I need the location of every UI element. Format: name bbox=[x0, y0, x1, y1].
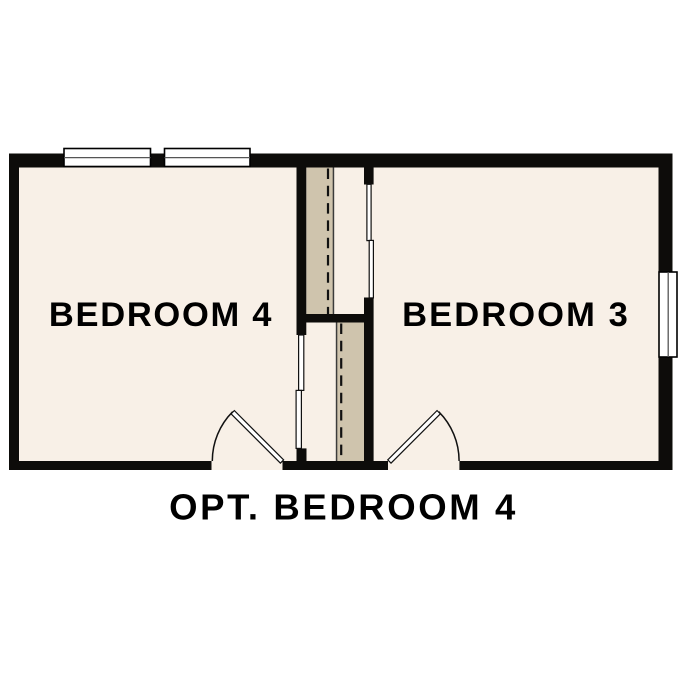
svg-text:BEDROOM 4: BEDROOM 4 bbox=[49, 296, 273, 334]
svg-text:OPT. BEDROOM 4: OPT. BEDROOM 4 bbox=[169, 487, 518, 528]
svg-text:BEDROOM 3: BEDROOM 3 bbox=[402, 296, 630, 334]
